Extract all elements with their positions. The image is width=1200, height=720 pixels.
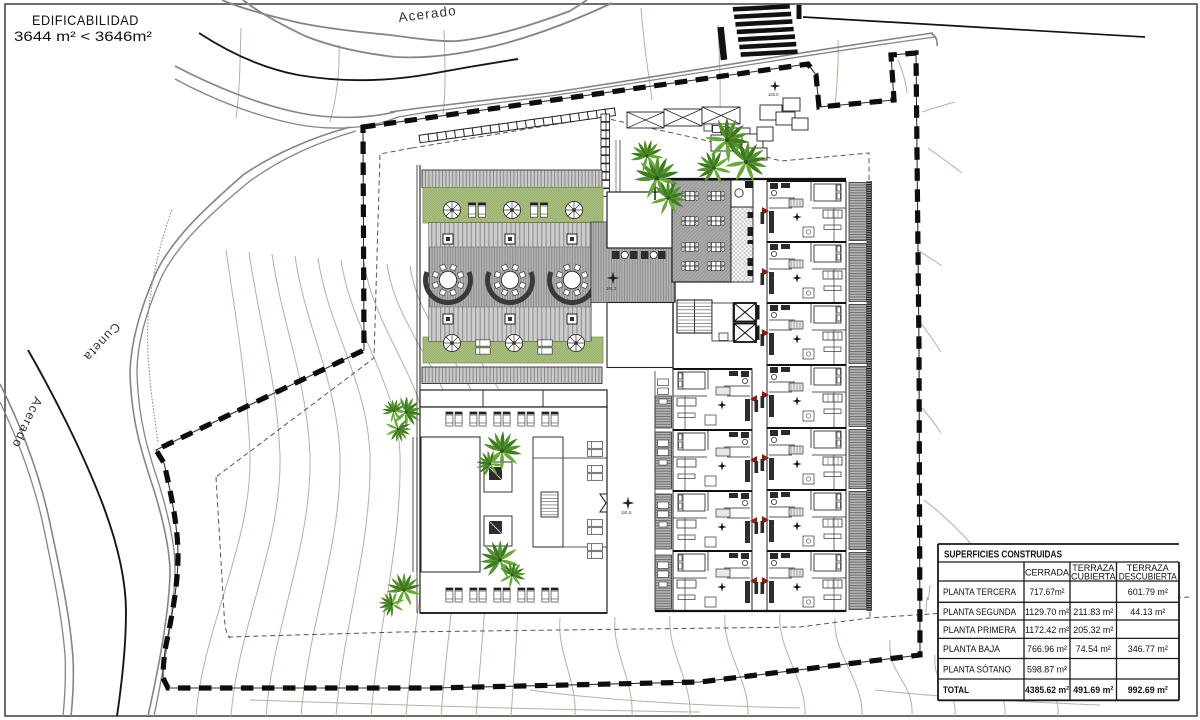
svg-text:1172.42 m²: 1172.42 m²	[1025, 625, 1069, 635]
svg-text:PLANTA TERCERA: PLANTA TERCERA	[943, 586, 1017, 597]
svg-text:DESCUBIERTA: DESCUBIERTA	[1119, 572, 1177, 582]
svg-text:601.79 m²: 601.79 m²	[1128, 587, 1168, 597]
svg-text:717.67m²: 717.67m²	[1030, 587, 1065, 597]
svg-text:CUBIERTA: CUBIERTA	[1071, 572, 1116, 582]
svg-text:PLANTA SÓTANO: PLANTA SÓTANO	[943, 663, 1011, 674]
svg-text:PLANTA PRIMERA: PLANTA PRIMERA	[943, 624, 1017, 635]
svg-text:PLANTA SEGUNDA: PLANTA SEGUNDA	[943, 606, 1017, 617]
svg-text:4385.62 m²: 4385.62 m²	[1025, 685, 1069, 695]
svg-text:211.83 m²: 211.83 m²	[1073, 607, 1113, 617]
svg-text:44.13 m²: 44.13 m²	[1130, 607, 1165, 617]
svg-text:346.77 m²: 346.77 m²	[1128, 644, 1168, 654]
svg-text:181.5: 181.5	[621, 510, 632, 515]
svg-text:491.69 m²: 491.69 m²	[1073, 685, 1113, 695]
svg-text:TOTAL: TOTAL	[943, 684, 969, 695]
svg-text:74.54 m²: 74.54 m²	[1076, 644, 1111, 654]
svg-text:EDIFICABILIDAD: EDIFICABILIDAD	[32, 13, 139, 28]
svg-text:PLANTA BAJA: PLANTA BAJA	[943, 643, 1001, 654]
svg-text:766.96 m²: 766.96 m²	[1027, 644, 1067, 654]
svg-text:3644 m² < 3646m²: 3644 m² < 3646m²	[14, 29, 153, 44]
svg-text:1129.70 m²: 1129.70 m²	[1025, 607, 1069, 617]
svg-text:992.69 m²: 992.69 m²	[1128, 685, 1168, 695]
svg-text:183.0: 183.0	[768, 92, 779, 97]
svg-text:CERRADA: CERRADA	[1025, 568, 1070, 579]
svg-text:SUPERFICIES CONSTRUIDAS: SUPERFICIES CONSTRUIDAS	[944, 550, 1062, 561]
svg-text:205.32 m²: 205.32 m²	[1073, 625, 1113, 635]
svg-text:598.87 m²: 598.87 m²	[1027, 664, 1067, 674]
svg-text:191.3: 191.3	[606, 286, 617, 291]
